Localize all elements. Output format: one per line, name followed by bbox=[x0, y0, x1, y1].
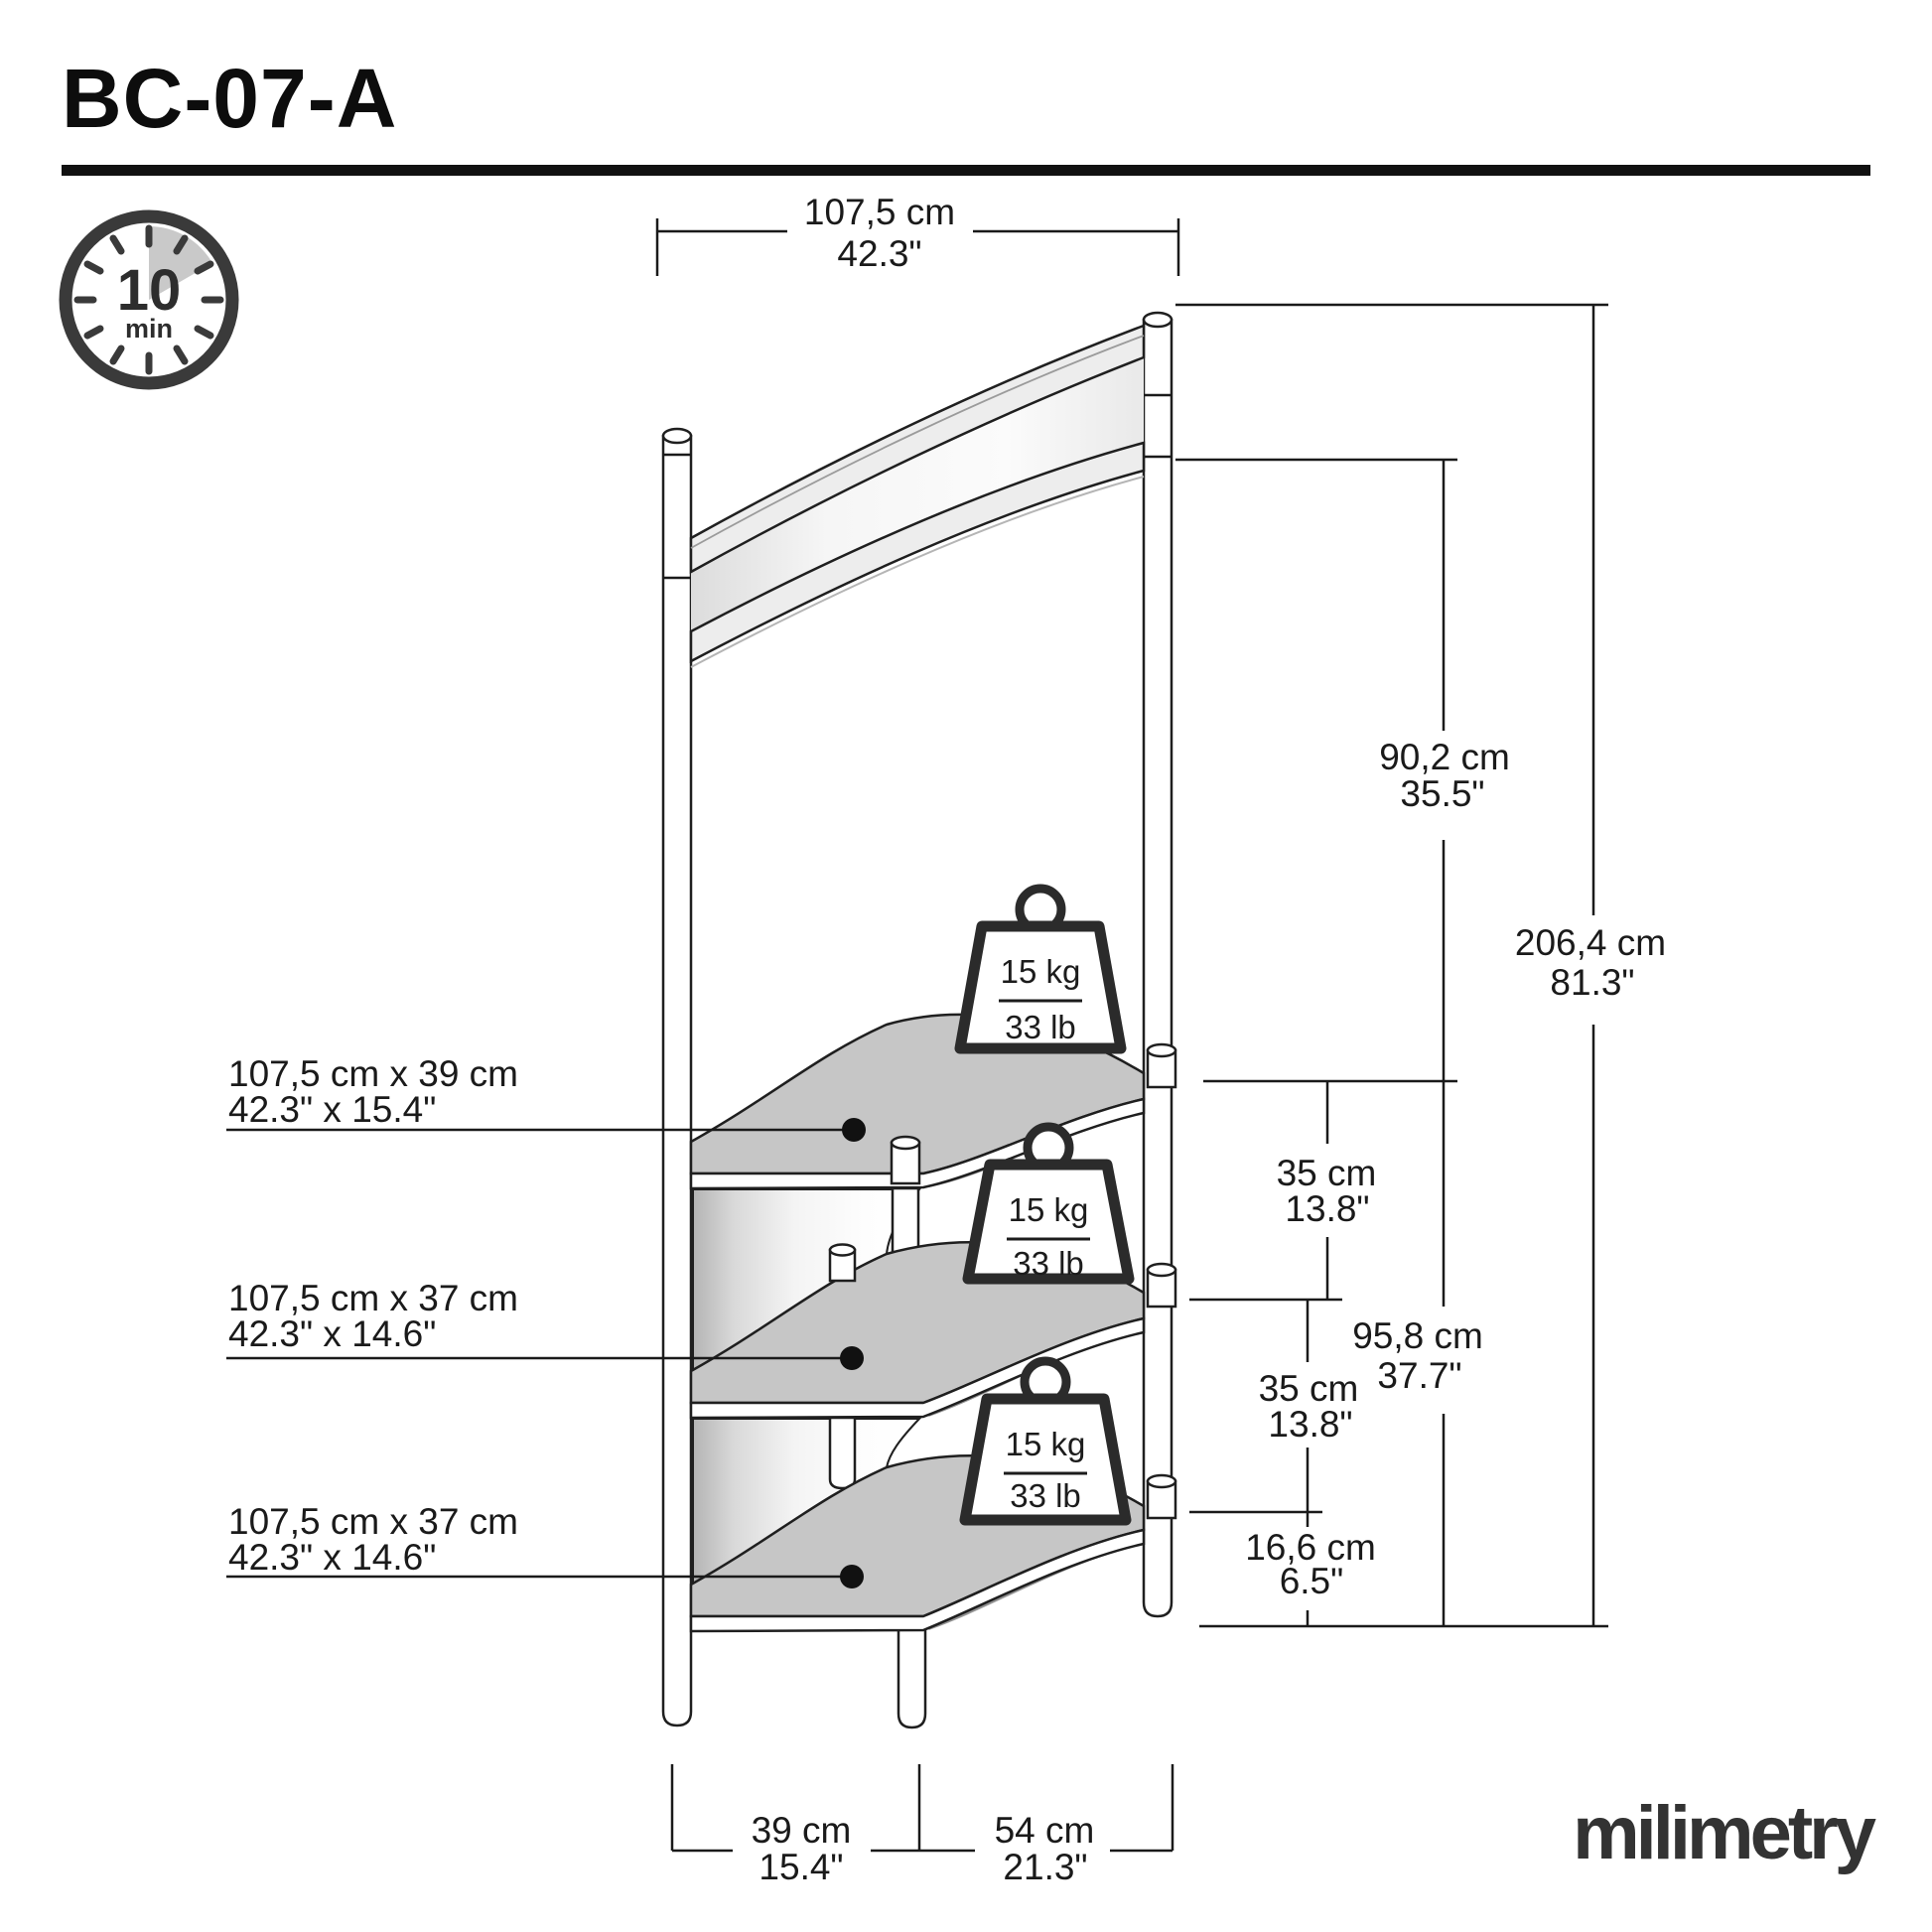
dim-bottom-clearance: 16,6 cm 6.5" bbox=[1245, 1512, 1376, 1626]
dim-label-cm: 95,8 cm bbox=[1352, 1315, 1483, 1356]
dim-label-in: 35.5" bbox=[1400, 773, 1484, 814]
dim-label-cm: 35 cm bbox=[1277, 1153, 1377, 1193]
leader-dot bbox=[840, 1565, 864, 1588]
shelf-drawing: 15 kg 33 lb 15 kg 33 lb 15 kg 33 lb bbox=[663, 313, 1175, 1727]
dim-base: 39 cm 15.4" 54 cm 21.3" bbox=[672, 1764, 1173, 1887]
dim-label-cm: 39 cm bbox=[752, 1810, 852, 1851]
shelf-1-joint-cap bbox=[1148, 1044, 1175, 1056]
weight-lb: 33 lb bbox=[1005, 1009, 1076, 1045]
dim-label-cm: 206,4 cm bbox=[1515, 922, 1666, 963]
brand-logo: milimetry bbox=[1573, 1791, 1876, 1875]
shelf-size-cm: 107,5 cm x 37 cm bbox=[228, 1278, 518, 1318]
weight-kg: 15 kg bbox=[1009, 1191, 1089, 1228]
dim-label-in: 42.3" bbox=[837, 233, 921, 274]
weight-kg: 15 kg bbox=[1006, 1426, 1086, 1462]
left-post-cap bbox=[663, 429, 691, 443]
dim-label-cm: 54 cm bbox=[995, 1810, 1095, 1851]
dim-height-total: 206,4 cm 81.3" bbox=[1515, 305, 1666, 1626]
left-post bbox=[663, 436, 691, 1725]
dim-label-in: 13.8" bbox=[1285, 1188, 1369, 1229]
mid-post-lower bbox=[830, 1418, 855, 1488]
dim-shelf-spacing-2: 35 cm 13.8" bbox=[1259, 1300, 1359, 1512]
shelf-size-in: 42.3" x 15.4" bbox=[228, 1089, 436, 1130]
shelf-size-in: 42.3" x 14.6" bbox=[228, 1537, 436, 1578]
leader-dot bbox=[840, 1346, 864, 1370]
page-title: BC-07-A bbox=[62, 52, 397, 145]
dim-label-in: 21.3" bbox=[1003, 1847, 1087, 1887]
assembly-time-icon: 10 min bbox=[66, 216, 232, 383]
shelf-size-cm: 107,5 cm x 39 cm bbox=[228, 1053, 518, 1094]
shelf-size-cm: 107,5 cm x 37 cm bbox=[228, 1501, 518, 1542]
dim-height-upper: 90,2 cm 35.5" bbox=[1379, 460, 1510, 1081]
dim-label-in: 6.5" bbox=[1280, 1561, 1344, 1601]
assembly-time-unit: min bbox=[125, 314, 173, 344]
dim-label-in: 81.3" bbox=[1550, 962, 1634, 1003]
dim-label-cm: 90,2 cm bbox=[1379, 737, 1510, 777]
front-leg bbox=[898, 1628, 925, 1727]
weight-icon-1: 15 kg 33 lb bbox=[960, 889, 1121, 1048]
right-post bbox=[1144, 320, 1172, 1616]
shelf-size-in: 42.3" x 14.6" bbox=[228, 1313, 436, 1354]
weight-lb: 33 lb bbox=[1010, 1477, 1081, 1514]
dim-shelf-spacing-1: 35 cm 13.8" bbox=[1277, 1081, 1377, 1300]
dim-label-in: 13.8" bbox=[1268, 1404, 1352, 1445]
dim-width-top: 107,5 cm 42.3" bbox=[657, 192, 1178, 276]
right-post-cap bbox=[1144, 313, 1172, 327]
dim-label-cm: 35 cm bbox=[1259, 1368, 1359, 1409]
dim-label-cm: 107,5 cm bbox=[804, 192, 955, 232]
shelf-3-joint-cap bbox=[1148, 1475, 1175, 1487]
weight-kg: 15 kg bbox=[1001, 953, 1081, 990]
dim-label-in: 15.4" bbox=[759, 1847, 843, 1887]
back-panel bbox=[691, 326, 1144, 667]
shelf-2-peg-cap bbox=[830, 1245, 855, 1256]
shelf-1-peg-cap bbox=[892, 1137, 919, 1149]
shelf-2-joint-cap bbox=[1148, 1264, 1175, 1276]
dim-label-in: 37.7" bbox=[1377, 1355, 1461, 1396]
spec-sheet: BC-07-A 10 min bbox=[0, 0, 1932, 1932]
title-rule bbox=[62, 165, 1870, 176]
leader-dot bbox=[842, 1118, 866, 1142]
back-panel-glass bbox=[691, 357, 1144, 631]
weight-lb: 33 lb bbox=[1013, 1245, 1084, 1282]
